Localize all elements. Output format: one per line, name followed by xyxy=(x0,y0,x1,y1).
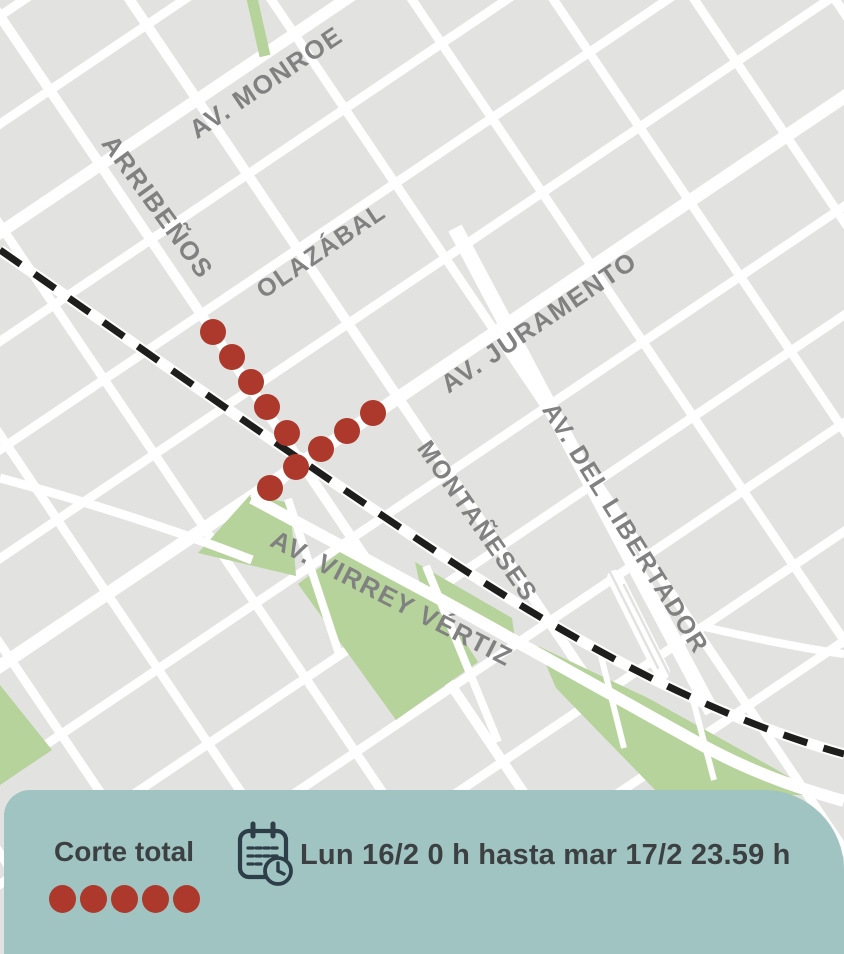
legend-banner xyxy=(4,790,844,954)
legend-dot xyxy=(142,885,169,913)
closure-dot xyxy=(308,436,334,462)
closure-dot xyxy=(219,344,245,370)
closure-dot xyxy=(200,319,226,345)
legend-closure-dots xyxy=(49,885,200,913)
closure-dot xyxy=(360,400,386,426)
legend-dot xyxy=(80,885,107,913)
closure-schedule: Lun 16/2 0 h hasta mar 17/2 23.59 h xyxy=(300,839,791,872)
closure-dot xyxy=(257,475,283,501)
closure-dot xyxy=(238,369,264,395)
legend-title: Corte total xyxy=(54,836,194,868)
legend-dot xyxy=(111,885,138,913)
legend-dot xyxy=(173,885,200,913)
calendar-clock-icon xyxy=(234,820,296,888)
closure-dot xyxy=(274,420,300,446)
closure-dot xyxy=(254,394,280,420)
closure-dot xyxy=(283,454,309,480)
closure-dot xyxy=(334,418,360,444)
street-closure-infographic: AV. MONROEARRIBEÑOSOLAZÁBALAV. JURAMENTO… xyxy=(0,0,844,954)
legend-dot xyxy=(49,885,76,913)
